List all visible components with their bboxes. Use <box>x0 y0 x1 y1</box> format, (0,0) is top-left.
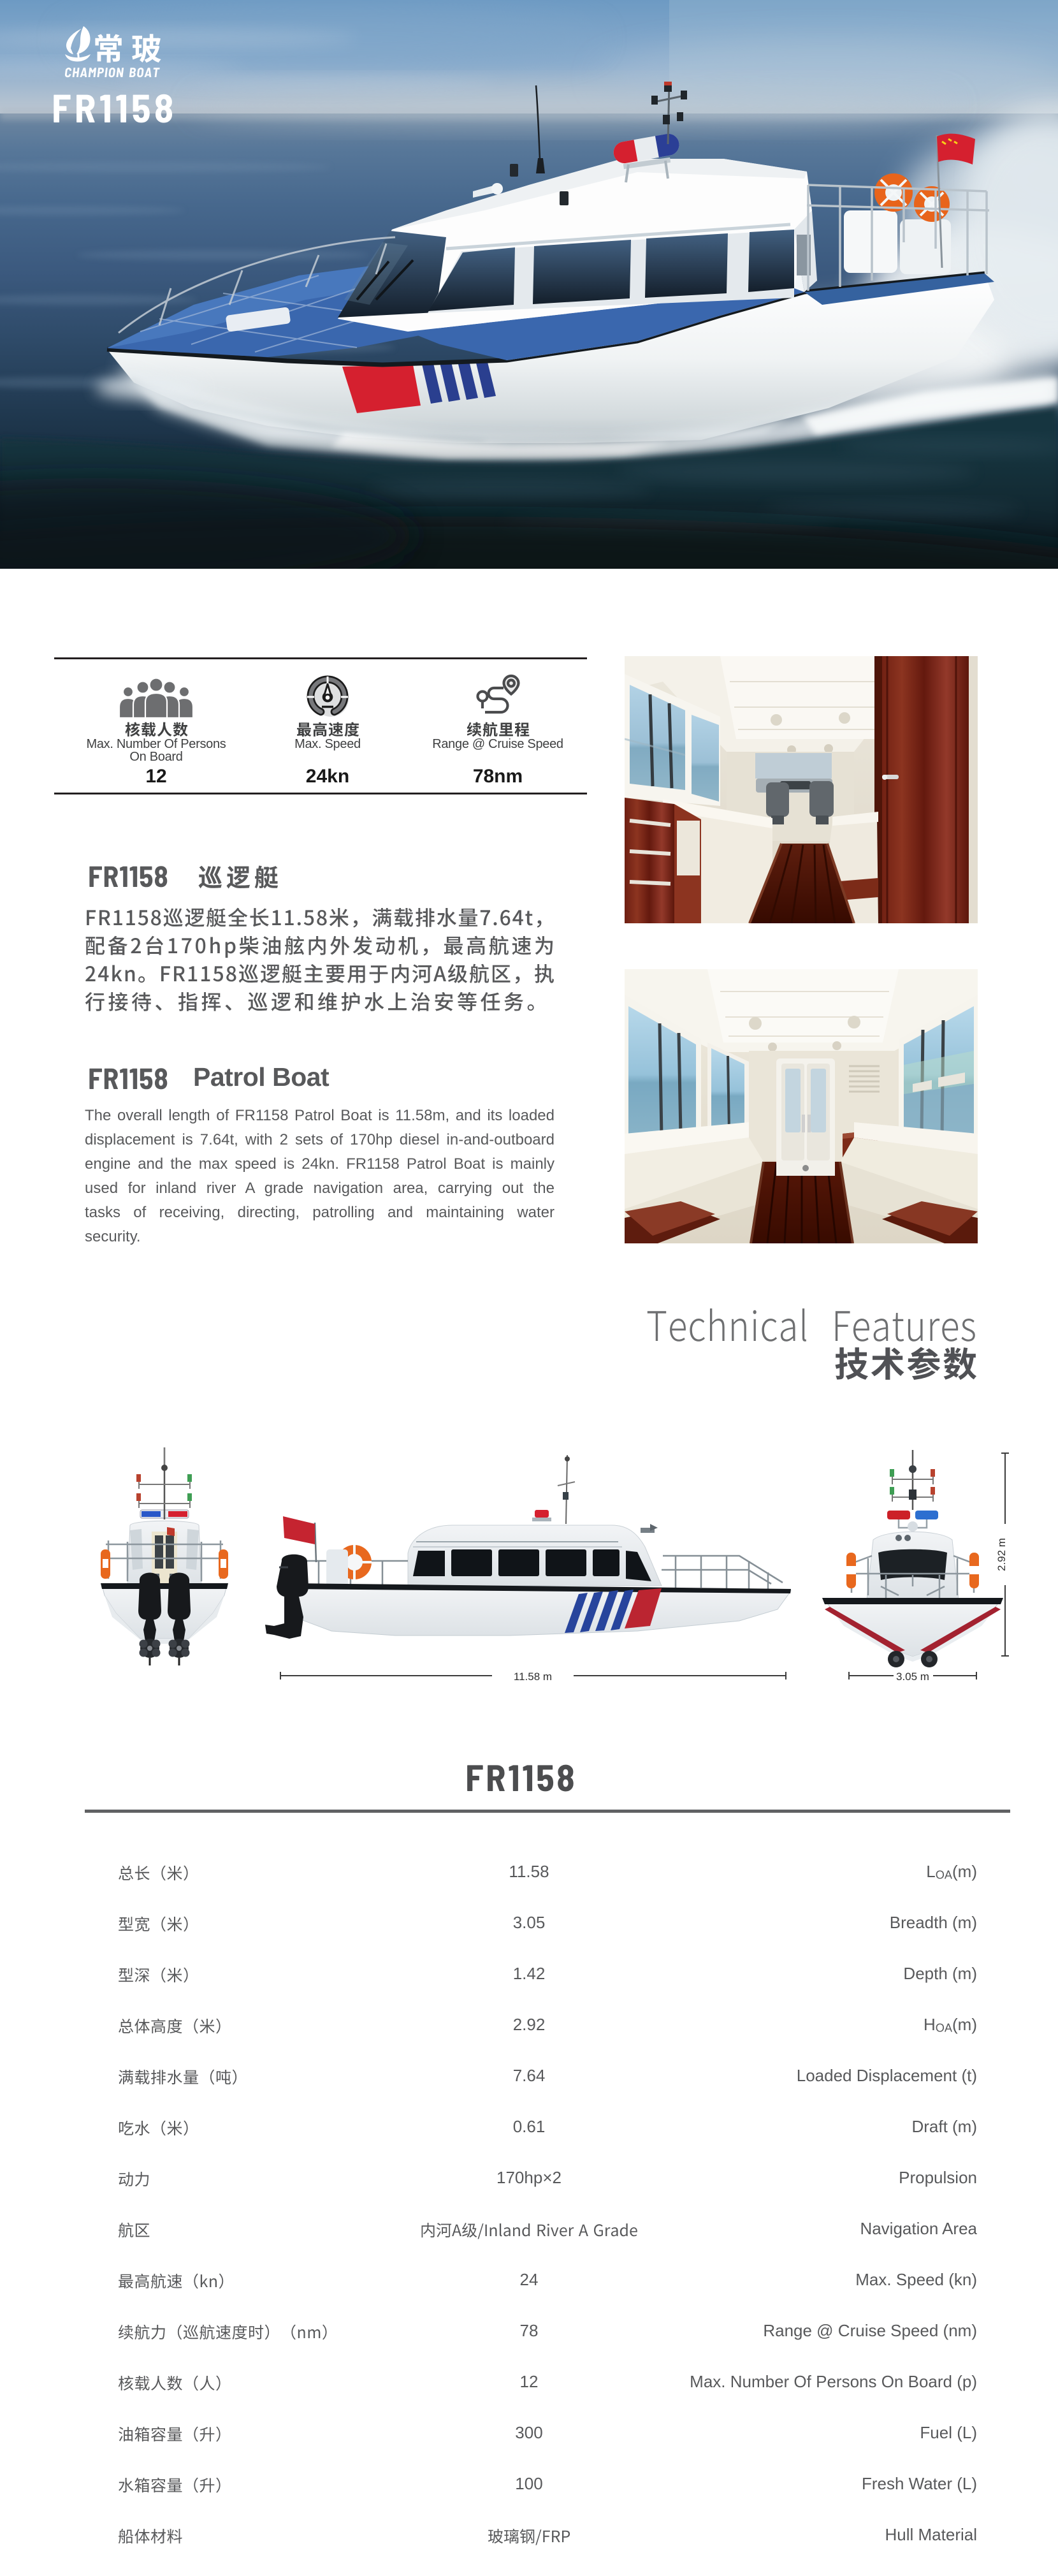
svg-text:3.05 m: 3.05 m <box>896 1671 929 1683</box>
svg-text:2.92 m: 2.92 m <box>996 1538 1008 1571</box>
svg-text:11.58 m: 11.58 m <box>514 1671 552 1683</box>
